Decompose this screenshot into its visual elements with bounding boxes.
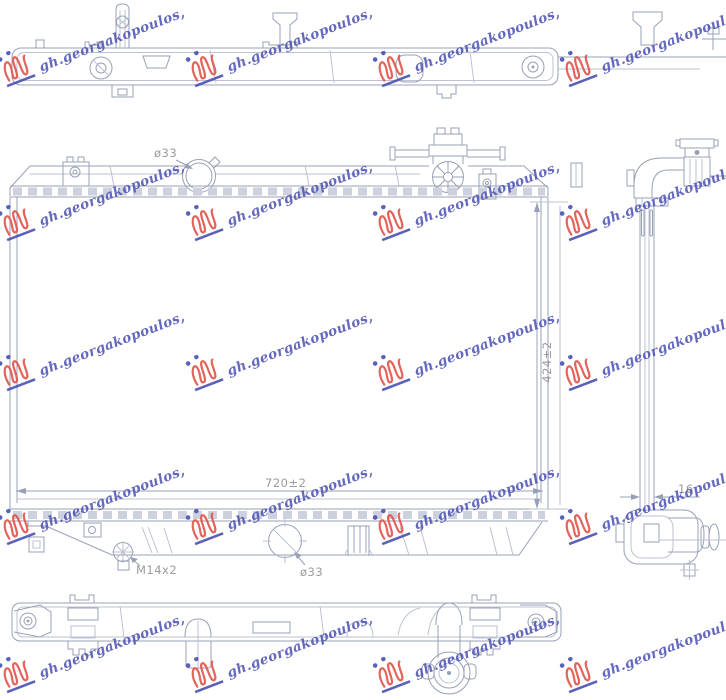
label-top-port-diameter: ø33: [154, 146, 177, 160]
label-drain-plug-thread: M14x2: [136, 563, 177, 577]
label-core-width: 720±2: [265, 476, 306, 490]
label-core-thickness: 16: [678, 482, 694, 496]
label-bottom-port-diameter: ø33: [300, 565, 323, 579]
front-view-drawing: [10, 128, 582, 570]
bottom-view-drawing: [12, 595, 561, 694]
side-view-drawing: [616, 139, 726, 580]
top-view-drawing: [12, 4, 726, 98]
label-core-height: 424±2: [540, 341, 554, 382]
radiator-technical-drawing: ø33 720±2 424±2 M14x2 ø33 16 gh.georgako…: [0, 0, 726, 700]
drawing-lines: ø33 720±2 424±2 M14x2 ø33 16: [0, 0, 726, 700]
dimension-labels: ø33 720±2 424±2 M14x2 ø33 16: [136, 146, 694, 579]
